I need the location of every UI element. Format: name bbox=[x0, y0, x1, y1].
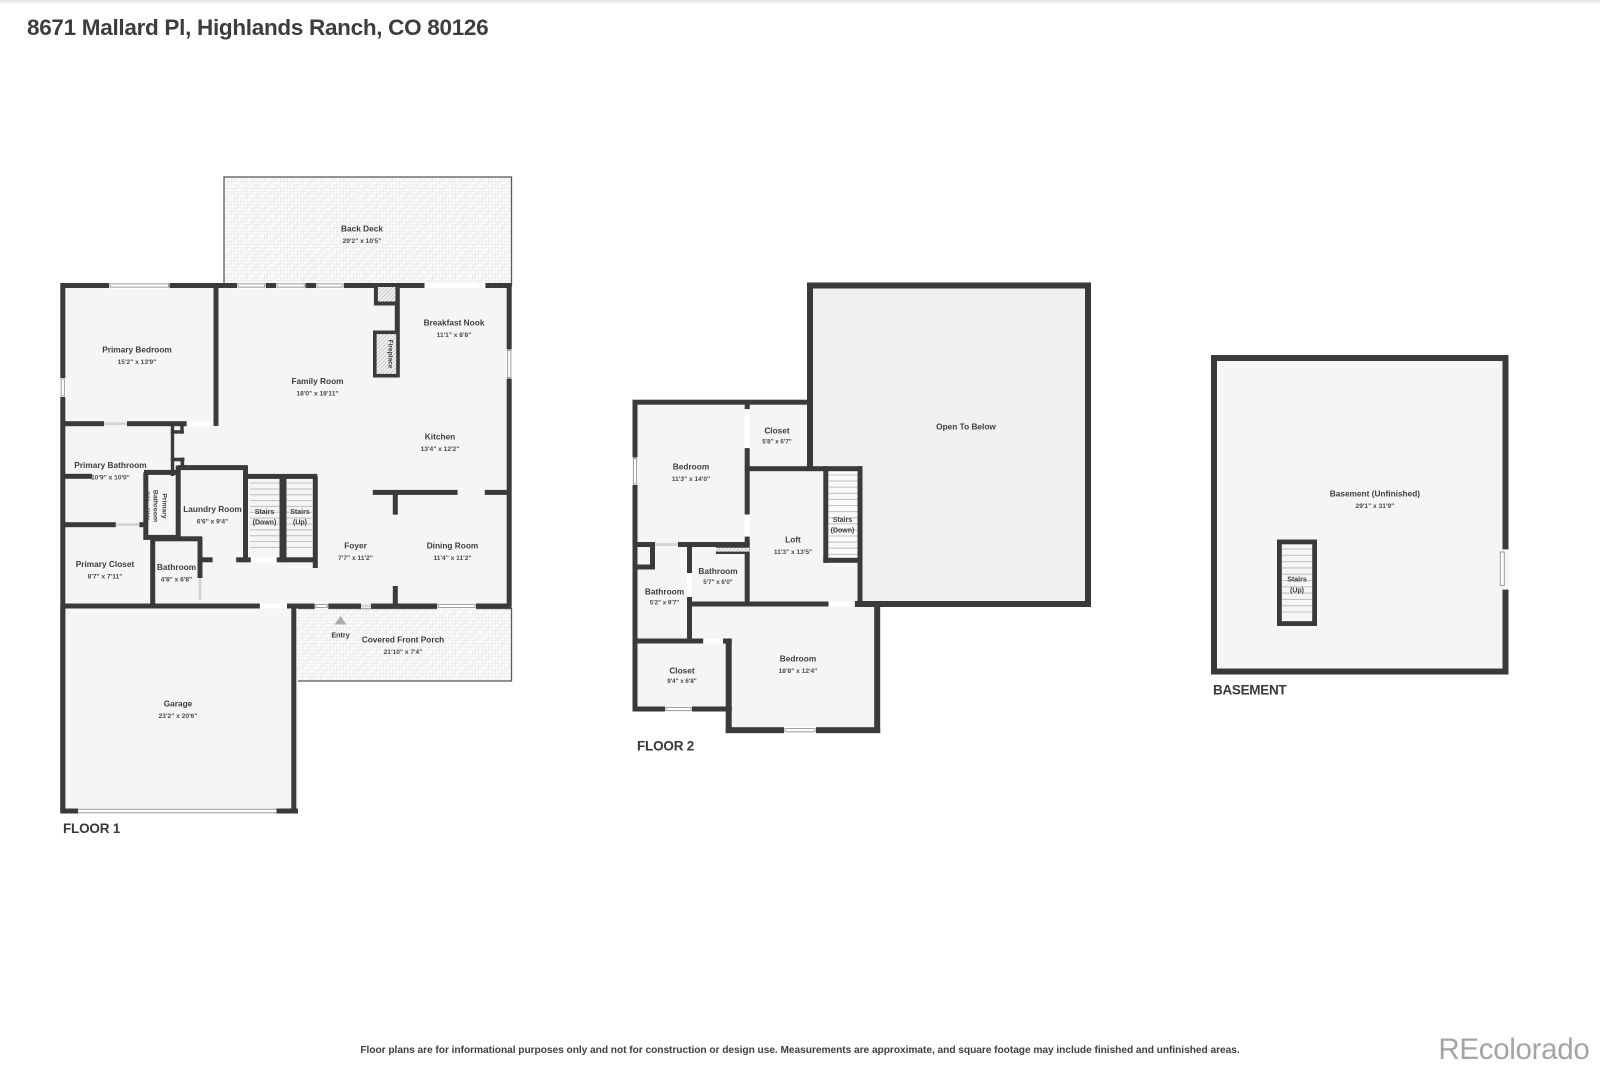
svg-text:Family Room: Family Room bbox=[291, 376, 343, 386]
svg-text:Fireplace: Fireplace bbox=[387, 340, 394, 369]
svg-text:Breakfast Nook: Breakfast Nook bbox=[424, 318, 485, 328]
svg-text:(Down): (Down) bbox=[253, 520, 277, 527]
svg-text:Primary: Primary bbox=[161, 493, 168, 519]
svg-text:Closet: Closet bbox=[764, 426, 790, 436]
svg-text:Stairs: Stairs bbox=[290, 509, 310, 516]
svg-text:Entry: Entry bbox=[331, 631, 349, 640]
svg-text:6'6" x 9'4": 6'6" x 9'4" bbox=[197, 519, 228, 526]
svg-text:29'2" x 10'5": 29'2" x 10'5" bbox=[343, 238, 382, 245]
svg-text:Bedroom: Bedroom bbox=[780, 654, 816, 664]
svg-text:Covered Front Porch: Covered Front Porch bbox=[362, 635, 445, 645]
svg-text:18'8" x 12'4": 18'8" x 12'4" bbox=[779, 668, 818, 675]
svg-text:Bathroom: Bathroom bbox=[152, 490, 159, 522]
svg-text:5'7" x 6'0": 5'7" x 6'0" bbox=[703, 579, 733, 586]
svg-text:Kitchen: Kitchen bbox=[425, 432, 455, 442]
svg-text:11'3" x 13'5": 11'3" x 13'5" bbox=[774, 549, 812, 556]
svg-text:3'1" x 5'11": 3'1" x 5'11" bbox=[143, 491, 149, 521]
svg-text:Bathroom: Bathroom bbox=[157, 562, 196, 572]
svg-text:(Down): (Down) bbox=[831, 528, 855, 535]
svg-text:Laundry Room: Laundry Room bbox=[183, 504, 242, 514]
svg-text:Stairs: Stairs bbox=[833, 517, 853, 524]
svg-text:5'2" x 9'7": 5'2" x 9'7" bbox=[650, 600, 680, 607]
svg-text:18'0" x 18'11": 18'0" x 18'11" bbox=[296, 391, 338, 398]
svg-text:Stairs: Stairs bbox=[1287, 577, 1307, 584]
svg-text:5'8" x 6'7": 5'8" x 6'7" bbox=[762, 439, 792, 446]
svg-text:29'1" x 31'9": 29'1" x 31'9" bbox=[1356, 503, 1395, 510]
svg-text:FLOOR 1: FLOOR 1 bbox=[63, 821, 121, 836]
svg-text:Bedroom: Bedroom bbox=[673, 462, 709, 472]
svg-text:BASEMENT: BASEMENT bbox=[1213, 683, 1287, 698]
svg-text:Stairs: Stairs bbox=[255, 509, 275, 516]
svg-text:Bathroom: Bathroom bbox=[645, 587, 684, 597]
svg-text:9'4" x 6'8": 9'4" x 6'8" bbox=[667, 678, 697, 685]
svg-text:Floor plans are for informatio: Floor plans are for informational purpos… bbox=[360, 1045, 1239, 1056]
svg-text:21'10" x 7'4": 21'10" x 7'4" bbox=[384, 649, 423, 656]
svg-text:(Up): (Up) bbox=[1290, 588, 1304, 595]
svg-text:15'2" x 13'9": 15'2" x 13'9" bbox=[118, 359, 157, 366]
svg-text:Primary Closet: Primary Closet bbox=[76, 559, 135, 569]
svg-text:Open To Below: Open To Below bbox=[936, 422, 996, 432]
svg-text:4'8" x 6'8": 4'8" x 6'8" bbox=[161, 577, 192, 584]
svg-text:Closet: Closet bbox=[669, 666, 695, 676]
svg-text:23'2" x 20'6": 23'2" x 20'6" bbox=[159, 713, 198, 720]
svg-text:Garage: Garage bbox=[164, 699, 193, 709]
svg-text:Back Deck: Back Deck bbox=[341, 224, 383, 234]
svg-text:FLOOR 2: FLOOR 2 bbox=[637, 739, 694, 754]
svg-text:Primary Bathroom: Primary Bathroom bbox=[74, 460, 146, 470]
svg-text:11'1" x 8'8": 11'1" x 8'8" bbox=[437, 332, 472, 339]
svg-text:10'9" x 10'0": 10'9" x 10'0" bbox=[91, 475, 130, 482]
svg-text:11'3" x 14'0": 11'3" x 14'0" bbox=[672, 476, 710, 483]
svg-text:Basement (Unfinished): Basement (Unfinished) bbox=[1330, 489, 1421, 499]
svg-text:7'7" x 11'2": 7'7" x 11'2" bbox=[338, 555, 373, 562]
svg-text:Loft: Loft bbox=[785, 535, 801, 545]
svg-text:8671 Mallard Pl, Highlands Ran: 8671 Mallard Pl, Highlands Ranch, CO 801… bbox=[27, 15, 488, 40]
svg-text:8'7" x 7'11": 8'7" x 7'11" bbox=[88, 574, 123, 581]
svg-text:Primary Bedroom: Primary Bedroom bbox=[102, 345, 172, 355]
svg-text:(Up): (Up) bbox=[293, 520, 307, 527]
svg-text:Bathroom: Bathroom bbox=[698, 566, 737, 576]
svg-text:REcolorado: REcolorado bbox=[1438, 1033, 1589, 1066]
svg-text:Dining Room: Dining Room bbox=[427, 541, 479, 551]
svg-text:13'4" x 12'2": 13'4" x 12'2" bbox=[421, 446, 460, 453]
svg-text:11'4" x 11'2": 11'4" x 11'2" bbox=[434, 555, 472, 562]
svg-text:Foyer: Foyer bbox=[344, 541, 367, 551]
